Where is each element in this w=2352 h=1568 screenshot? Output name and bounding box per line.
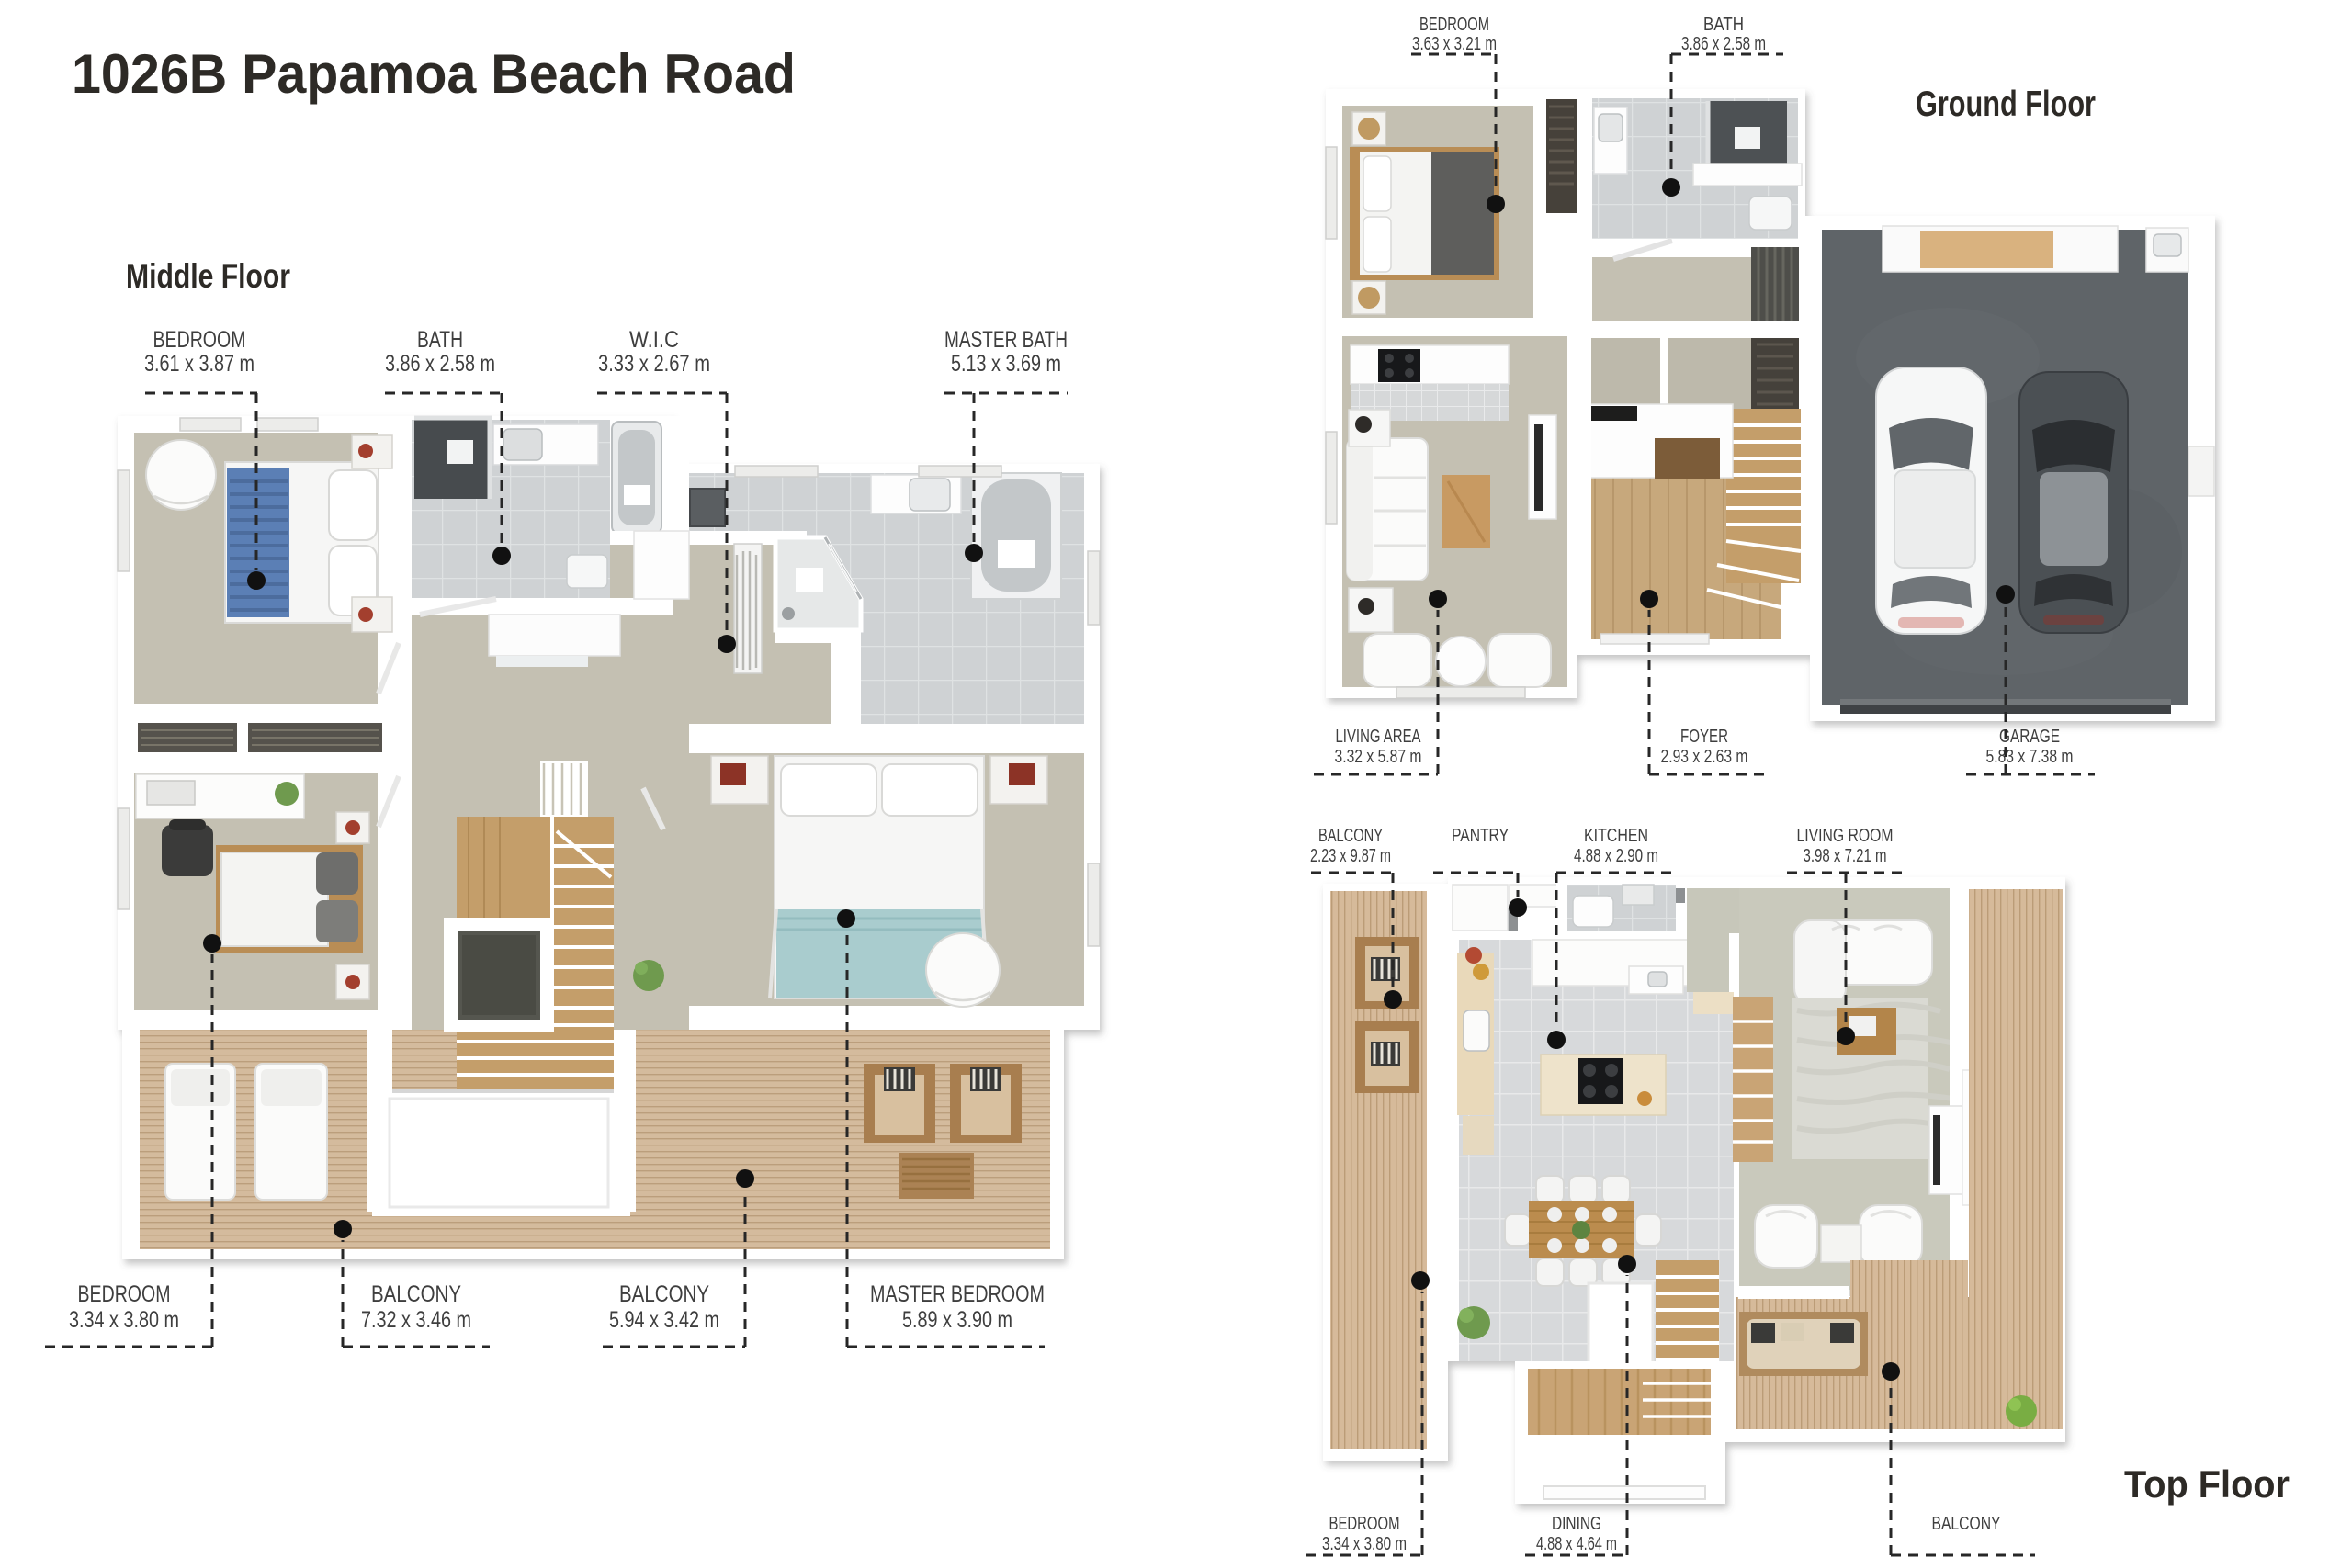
svg-text:BALCONY: BALCONY xyxy=(371,1281,461,1307)
svg-text:5.83 x 7.38 m: 5.83 x 7.38 m xyxy=(1986,747,2074,767)
svg-text:LIVING AREA: LIVING AREA xyxy=(1336,727,1421,747)
svg-text:BEDROOM: BEDROOM xyxy=(1419,15,1489,35)
svg-text:5.13 x 3.69 m: 5.13 x 3.69 m xyxy=(951,351,1061,377)
svg-text:3.63 x 3.21 m: 3.63 x 3.21 m xyxy=(1412,34,1497,54)
svg-text:3.33 x 2.67 m: 3.33 x 2.67 m xyxy=(598,351,710,377)
svg-text:KITCHEN: KITCHEN xyxy=(1584,826,1648,846)
svg-text:BALCONY: BALCONY xyxy=(1932,1514,2001,1534)
svg-text:2.23 x 9.87 m: 2.23 x 9.87 m xyxy=(1310,846,1391,866)
svg-text:BEDROOM: BEDROOM xyxy=(1329,1514,1400,1534)
svg-text:3.61 x 3.87 m: 3.61 x 3.87 m xyxy=(144,351,254,377)
svg-text:LIVING ROOM: LIVING ROOM xyxy=(1797,826,1894,846)
svg-text:BEDROOM: BEDROOM xyxy=(153,327,246,353)
svg-text:4.88 x 2.90 m: 4.88 x 2.90 m xyxy=(1574,846,1658,866)
svg-text:BATH: BATH xyxy=(417,327,463,353)
svg-text:3.32 x 5.87 m: 3.32 x 5.87 m xyxy=(1335,747,1422,767)
svg-text:5.89 x 3.90 m: 5.89 x 3.90 m xyxy=(902,1307,1012,1333)
svg-text:Top Floor: Top Floor xyxy=(2124,1462,2290,1506)
svg-text:5.94 x 3.42 m: 5.94 x 3.42 m xyxy=(609,1307,719,1333)
svg-text:MASTER BATH: MASTER BATH xyxy=(944,327,1068,353)
svg-text:3.86 x 2.58 m: 3.86 x 2.58 m xyxy=(385,351,495,377)
svg-text:Middle Floor: Middle Floor xyxy=(126,257,290,295)
svg-text:7.32 x 3.46 m: 7.32 x 3.46 m xyxy=(361,1307,471,1333)
svg-text:4.88 x 4.64 m: 4.88 x 4.64 m xyxy=(1536,1534,1617,1554)
svg-text:1026B Papamoa Beach Road: 1026B Papamoa Beach Road xyxy=(72,43,796,105)
svg-text:3.86 x 2.58 m: 3.86 x 2.58 m xyxy=(1681,34,1766,54)
svg-text:FOYER: FOYER xyxy=(1680,727,1728,747)
svg-text:BALCONY: BALCONY xyxy=(619,1281,709,1307)
svg-text:DINING: DINING xyxy=(1552,1514,1601,1534)
svg-text:MASTER BEDROOM: MASTER BEDROOM xyxy=(870,1281,1045,1307)
svg-text:GARAGE: GARAGE xyxy=(1999,727,2060,747)
svg-text:3.98 x 7.21 m: 3.98 x 7.21 m xyxy=(1804,846,1887,866)
svg-text:BATH: BATH xyxy=(1703,15,1744,35)
svg-text:BALCONY: BALCONY xyxy=(1318,826,1383,846)
svg-text:Ground Floor: Ground Floor xyxy=(1916,85,2096,124)
svg-text:3.34 x 3.80 m: 3.34 x 3.80 m xyxy=(69,1307,179,1333)
svg-text:W.I.C: W.I.C xyxy=(629,327,679,353)
svg-text:3.34 x 3.80 m: 3.34 x 3.80 m xyxy=(1322,1534,1407,1554)
svg-text:BEDROOM: BEDROOM xyxy=(78,1281,171,1307)
svg-text:2.93 x 2.63 m: 2.93 x 2.63 m xyxy=(1661,747,1748,767)
svg-text:PANTRY: PANTRY xyxy=(1452,826,1509,846)
